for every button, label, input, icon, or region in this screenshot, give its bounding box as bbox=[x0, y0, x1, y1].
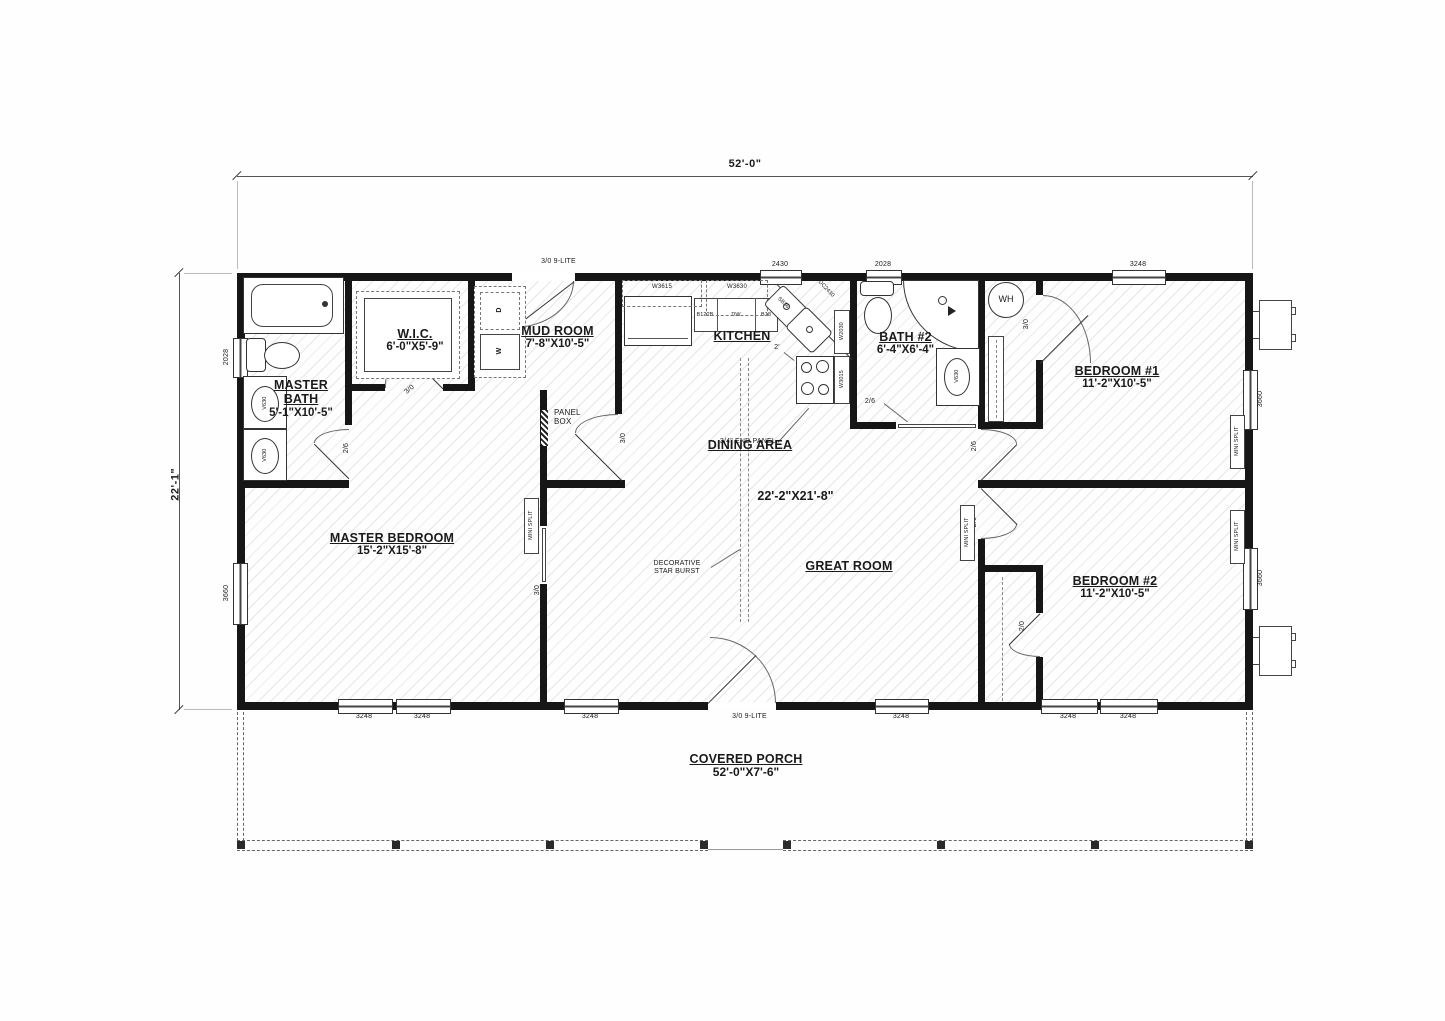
room-size: 6'-0"X5'-9" bbox=[370, 341, 460, 354]
porch-post bbox=[700, 841, 708, 849]
window-label: 2430 bbox=[760, 261, 800, 269]
room-name: MASTER BEDROOM bbox=[313, 531, 471, 545]
condenser-unit bbox=[1259, 626, 1292, 676]
door-label: 2/6 bbox=[971, 435, 979, 457]
toilet-bowl bbox=[264, 342, 300, 369]
door-label: 2/0 bbox=[1019, 615, 1027, 637]
wall bbox=[978, 422, 1043, 429]
window-3248 bbox=[396, 699, 451, 714]
refrigerator-line bbox=[628, 338, 688, 339]
porch-post bbox=[783, 841, 791, 849]
sink-label: V630 bbox=[262, 440, 268, 470]
wall bbox=[1036, 565, 1043, 613]
cabinet-label: W2030 bbox=[839, 314, 845, 348]
wall bbox=[615, 273, 622, 414]
room-name: MUD ROOM bbox=[500, 324, 615, 338]
room-label-bedroom1: BEDROOM #1 11'-2"X10'-5" bbox=[1056, 364, 1178, 392]
shower-drain bbox=[938, 296, 947, 305]
room-size: 7'-8"X10'-5" bbox=[500, 338, 615, 351]
door-opening bbox=[708, 702, 776, 710]
dim-extension bbox=[184, 273, 232, 274]
overall-width-dim: 52'-0" bbox=[700, 158, 790, 171]
porch-rail-bottom bbox=[783, 840, 1253, 851]
wall bbox=[1036, 273, 1043, 295]
water-heater-label: WH bbox=[988, 294, 1024, 304]
pocket-door-bath2-panel bbox=[898, 424, 976, 428]
wall bbox=[540, 584, 547, 710]
window-label: 3248 bbox=[1118, 261, 1158, 269]
condenser-stub bbox=[1253, 311, 1260, 312]
window-label: 3660 bbox=[223, 575, 231, 611]
sink-drain bbox=[806, 326, 813, 333]
wall bbox=[985, 565, 1043, 572]
burner bbox=[801, 382, 814, 395]
porch-edge bbox=[708, 849, 783, 850]
room-size-dining: 22'-2"X21'-8" bbox=[743, 489, 848, 503]
wall bbox=[978, 539, 985, 710]
cabinet-label: W3630 bbox=[706, 284, 768, 291]
room-label-porch: COVERED PORCH 52'-0"X7'-6" bbox=[682, 752, 810, 780]
door-label: 3/0 bbox=[620, 427, 628, 449]
room-size: 22'-2"X21'-8" bbox=[743, 489, 848, 503]
window-3248 bbox=[1041, 699, 1098, 714]
toilet-bowl bbox=[864, 297, 892, 334]
room-size: 5'-1"X10'-5" bbox=[255, 407, 347, 420]
window-label: 3248 bbox=[344, 713, 384, 721]
burner bbox=[801, 362, 812, 373]
wall bbox=[237, 480, 349, 488]
room-name: BATH #2 bbox=[858, 330, 953, 344]
window-label: 3248 bbox=[402, 713, 442, 721]
window-label: 2028 bbox=[223, 339, 231, 375]
wall bbox=[978, 480, 1253, 488]
door-label: 3/0 bbox=[1023, 313, 1031, 335]
room-label-bedroom2: BEDROOM #2 11'-2"X10'-5" bbox=[1054, 574, 1176, 602]
room-size: 11'-2"X10'-5" bbox=[1054, 588, 1176, 601]
mini-split-label: MINI SPLIT bbox=[528, 498, 534, 552]
wall bbox=[850, 273, 857, 428]
condenser-stub bbox=[1253, 338, 1260, 339]
condenser-unit bbox=[1259, 300, 1292, 350]
electrical-panel bbox=[541, 410, 548, 446]
room-name: BEDROOM #1 bbox=[1056, 364, 1178, 378]
porch-rail-bottom bbox=[237, 840, 708, 851]
condenser-stub bbox=[1253, 664, 1260, 665]
room-label-mud-room: MUD ROOM 7'-8"X10'-5" bbox=[500, 324, 615, 352]
window-label: 2028 bbox=[863, 261, 903, 269]
dryer-label: D bbox=[496, 300, 504, 320]
porch-post bbox=[937, 841, 945, 849]
door-label-entry: 3/0 9-LITE bbox=[516, 258, 601, 266]
window-label: 3248 bbox=[1048, 713, 1088, 721]
wall bbox=[540, 480, 625, 488]
bathtub-inner bbox=[251, 284, 333, 327]
condenser-tab bbox=[1291, 307, 1296, 315]
room-size: 52'-0"X7'-6" bbox=[682, 766, 810, 780]
dim-line-top bbox=[237, 176, 1253, 177]
condenser-tab bbox=[1291, 334, 1296, 342]
porch-post bbox=[1245, 841, 1253, 849]
window-3248 bbox=[1112, 270, 1166, 285]
dim-extension bbox=[237, 181, 238, 269]
porch-post bbox=[1091, 841, 1099, 849]
window-3248 bbox=[564, 699, 619, 714]
door-label: 2/6 bbox=[858, 398, 882, 406]
closet-shelf-line bbox=[1002, 577, 1004, 701]
wall bbox=[540, 488, 547, 526]
room-label-great-room: GREAT ROOM bbox=[790, 559, 908, 573]
window-label: 3660 bbox=[1257, 560, 1265, 596]
room-name: MASTER BATH bbox=[255, 378, 347, 407]
door-label: 3/0 bbox=[534, 579, 542, 601]
porch-post bbox=[546, 841, 554, 849]
room-label-master-bath: MASTER BATH 5'-1"X10'-5" bbox=[255, 378, 347, 420]
room-size: 11'-2"X10'-5" bbox=[1056, 378, 1178, 391]
room-name: GREAT ROOM bbox=[790, 559, 908, 573]
wall bbox=[1245, 273, 1253, 710]
window-3248 bbox=[1100, 699, 1158, 714]
room-label-dining: DINING AREA bbox=[698, 438, 802, 452]
toilet-tank bbox=[860, 281, 894, 296]
room-name: BEDROOM #2 bbox=[1054, 574, 1176, 588]
room-name: DINING AREA bbox=[698, 438, 802, 452]
shower-head bbox=[948, 306, 956, 316]
utility-chase-line bbox=[996, 340, 998, 418]
dim-extension bbox=[1252, 181, 1253, 269]
mini-split-label: MINI SPLIT bbox=[1234, 509, 1240, 563]
porch-post bbox=[392, 841, 400, 849]
overall-depth-dim: 22'-1" bbox=[170, 453, 183, 515]
window-3660 bbox=[233, 563, 248, 625]
wall bbox=[1036, 360, 1043, 422]
condenser-tab bbox=[1291, 660, 1296, 668]
room-label-kitchen: KITCHEN bbox=[692, 329, 792, 343]
wall bbox=[345, 384, 385, 391]
pocket-door-master-panel bbox=[542, 528, 546, 582]
burner bbox=[818, 384, 829, 395]
door-label: 2/6 bbox=[343, 437, 351, 459]
sink-label: V630 bbox=[954, 361, 960, 391]
window-label: 3248 bbox=[570, 713, 610, 721]
room-name: W.I.C. bbox=[370, 327, 460, 341]
room-size: 15'-2"X15'-8" bbox=[313, 545, 471, 558]
condenser-tab bbox=[1291, 633, 1296, 641]
cabinet-label: W3015 bbox=[839, 362, 845, 396]
floor-plan-sheet: 52'-0" 22'-1" bbox=[0, 0, 1445, 1021]
panel-box-label: PANEL BOX bbox=[554, 408, 594, 426]
window-3660 bbox=[1243, 370, 1258, 430]
star-burst-line bbox=[740, 358, 742, 622]
porch-post bbox=[237, 841, 245, 849]
room-name: KITCHEN bbox=[692, 329, 792, 343]
mini-split-label: MINI SPLIT bbox=[964, 505, 970, 559]
window-label: 3248 bbox=[881, 713, 921, 721]
toilet-tank bbox=[246, 338, 266, 372]
room-label-bath2: BATH #2 6'-4"X6'-4" bbox=[858, 330, 953, 358]
condenser-stub bbox=[1253, 637, 1260, 638]
window-3660 bbox=[1243, 548, 1258, 610]
room-label-master-bedroom: MASTER BEDROOM 15'-2"X15'-8" bbox=[313, 531, 471, 559]
mini-split-label: MINI SPLIT bbox=[1234, 414, 1240, 468]
star-burst-note: DECORATIVE STAR BURST bbox=[645, 560, 709, 576]
counter-note: 2' bbox=[770, 344, 784, 352]
door-opening bbox=[512, 273, 575, 281]
window-3248 bbox=[875, 699, 929, 714]
burner bbox=[816, 360, 829, 373]
wall bbox=[443, 384, 475, 391]
window-3248 bbox=[338, 699, 393, 714]
cabinet-label: W3615 bbox=[626, 284, 698, 291]
bathtub-drain bbox=[322, 301, 328, 307]
window-label: 3660 bbox=[1257, 381, 1265, 417]
door-label-entry: 3/0 9-LITE bbox=[707, 713, 792, 721]
dim-extension bbox=[184, 709, 232, 710]
room-name: COVERED PORCH bbox=[682, 752, 810, 766]
wall bbox=[850, 422, 896, 429]
room-size: 6'-4"X6'-4" bbox=[858, 344, 953, 357]
porch-rail-left bbox=[237, 712, 244, 846]
room-label-wic: W.I.C. 6'-0"X5'-9" bbox=[370, 327, 460, 355]
porch-rail-right bbox=[1246, 712, 1253, 846]
window-label: 3248 bbox=[1108, 713, 1148, 721]
